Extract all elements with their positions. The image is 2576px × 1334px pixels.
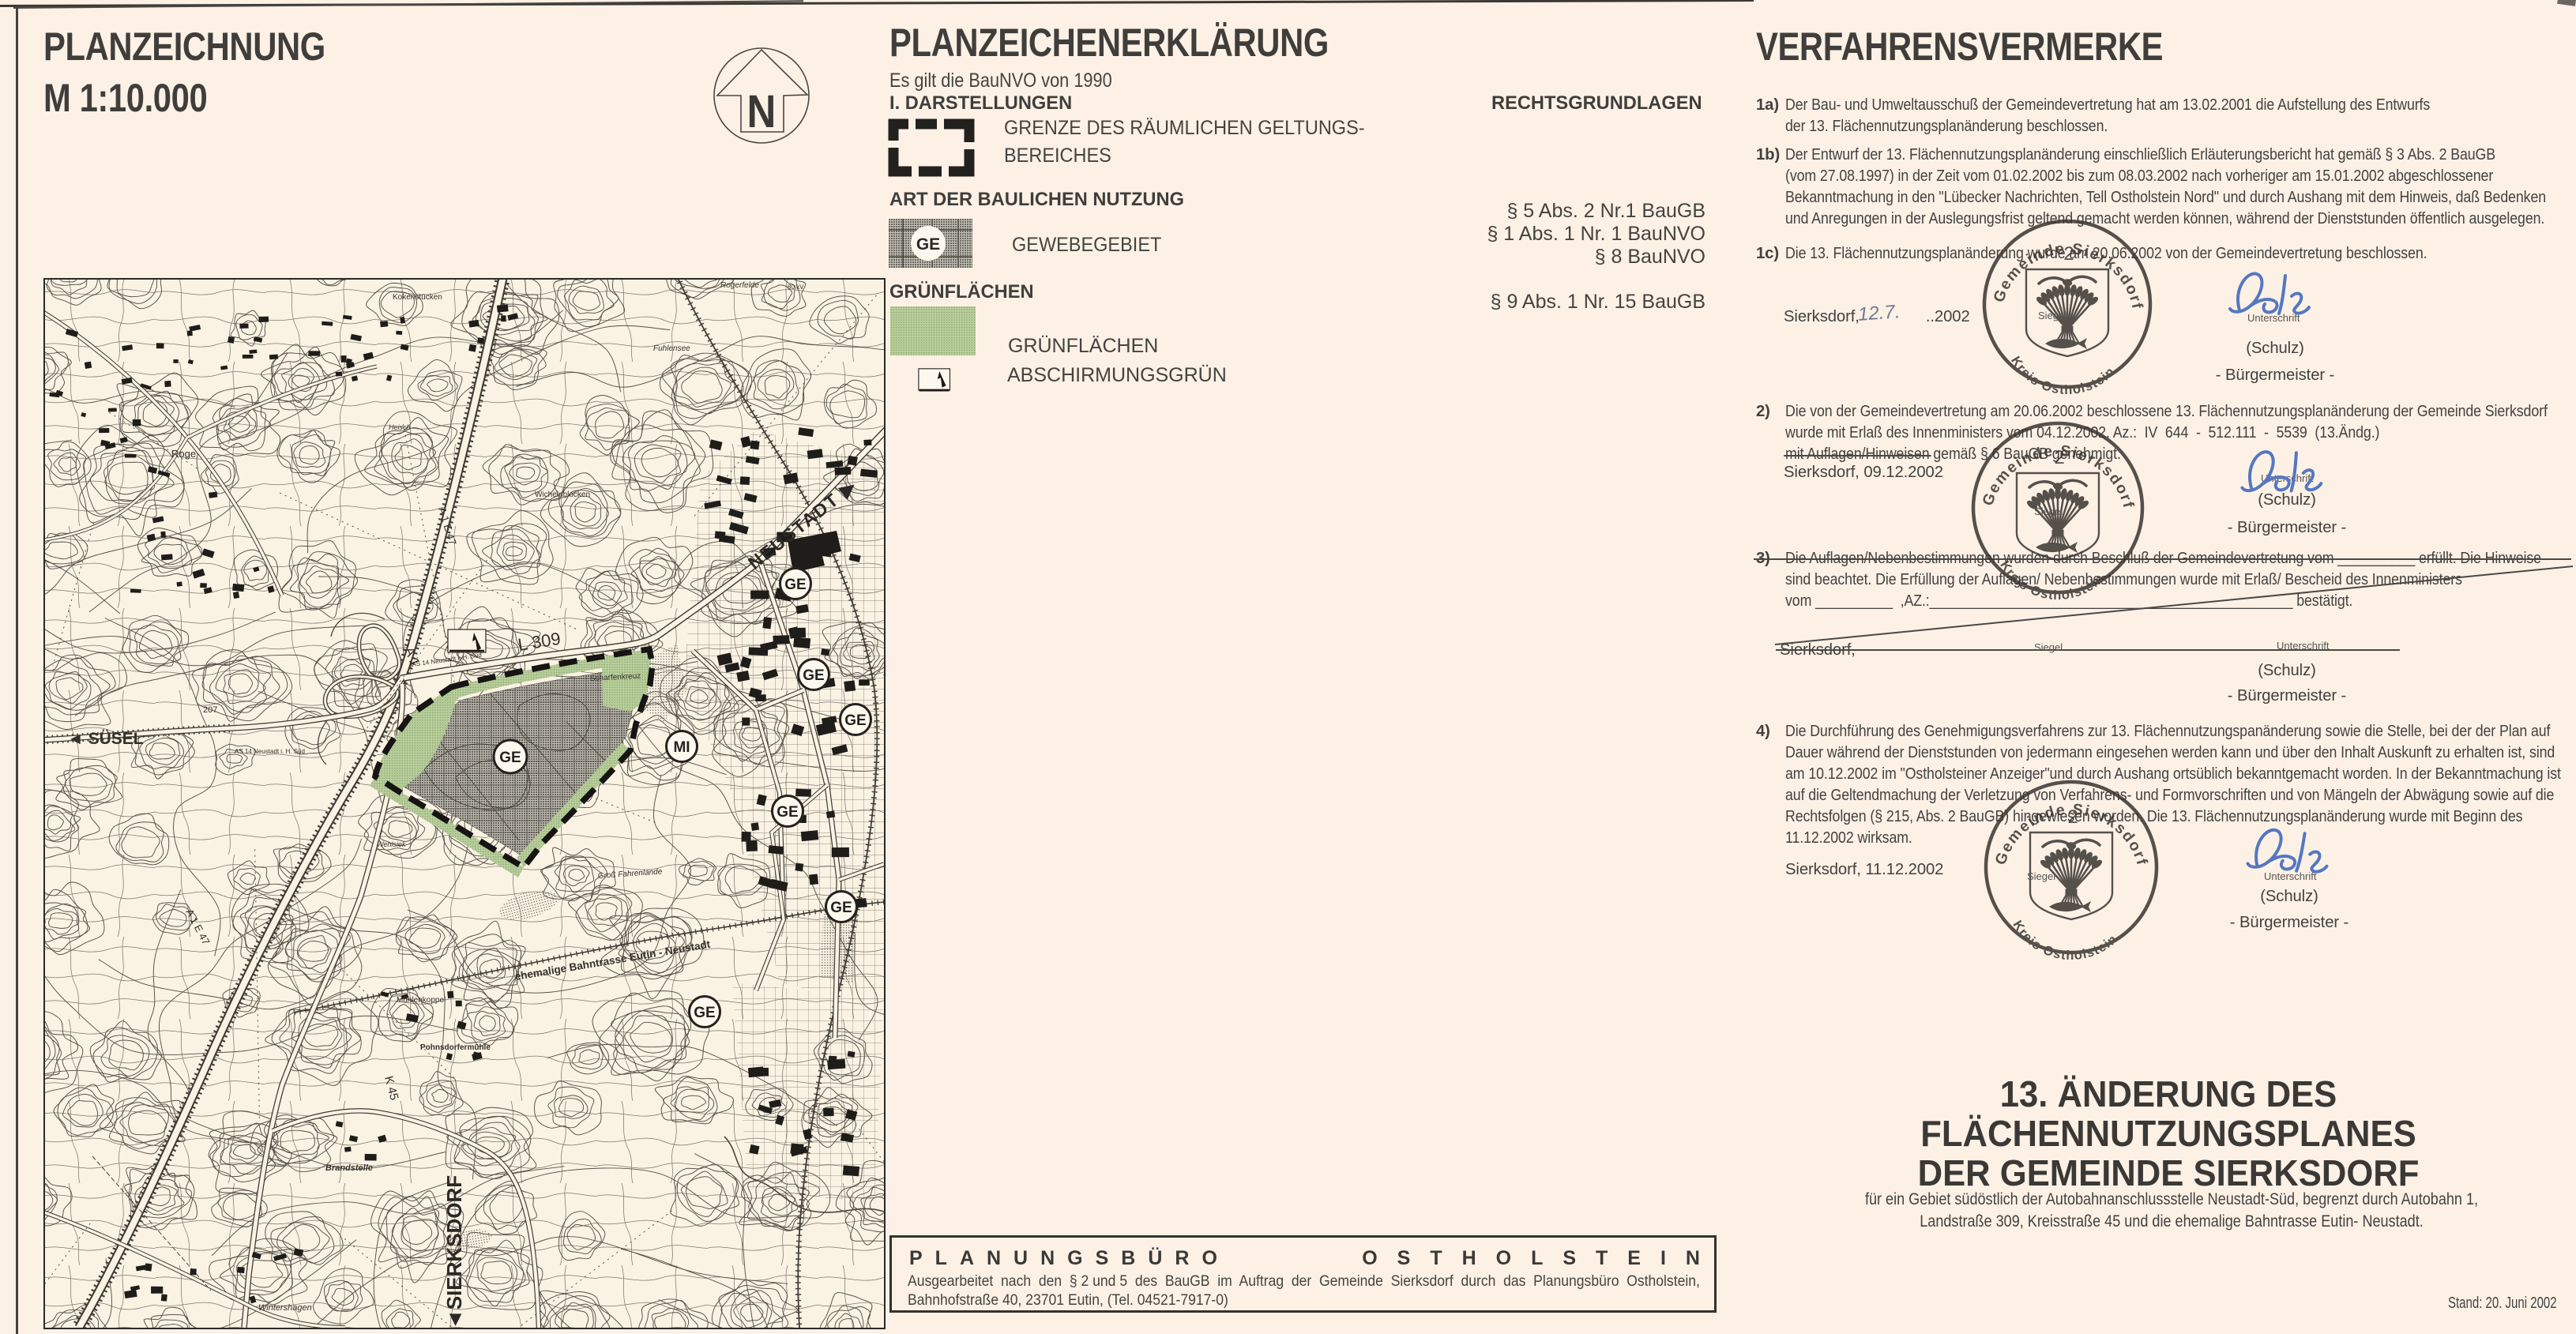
svg-text:GE: GE [844, 712, 866, 729]
svg-text:2: 2 [2063, 243, 2074, 265]
svg-text:GE: GE [803, 667, 824, 684]
svg-text:Heisch: Heisch [389, 423, 411, 431]
svg-text:80 kV: 80 kV [788, 284, 804, 291]
svg-text:Wintershagen: Wintershagen [258, 1303, 312, 1313]
svg-text:2: 2 [2054, 447, 2064, 468]
svg-text:Pohnsdorfermühle: Pohnsdorfermühle [420, 1043, 491, 1052]
svg-text:2: 2 [2067, 806, 2078, 828]
svg-text:Kokenstücken: Kokenstücken [393, 293, 442, 302]
svg-text:GE: GE [499, 750, 521, 766]
svg-text:207: 207 [203, 705, 217, 715]
svg-text:MI: MI [673, 739, 690, 756]
svg-text:GE: GE [916, 235, 940, 254]
svg-text:Mühlenkoppel: Mühlenkoppel [397, 996, 446, 1005]
svg-text:◄SIERKSDORF: ◄SIERKSDORF [442, 1175, 466, 1329]
svg-text:◄ SÜSEL: ◄ SÜSEL [67, 730, 144, 748]
svg-text:Roge: Roge [171, 448, 196, 460]
svg-text:Fuhlensee: Fuhlensee [653, 344, 690, 353]
svg-text:GE: GE [830, 900, 852, 916]
svg-text:Kreis Ostholstein: Kreis Ostholstein [2010, 918, 2120, 963]
svg-text:GE: GE [694, 1005, 715, 1021]
svg-text:AS 14 Neustadt i. H. Süd: AS 14 Neustadt i. H. Süd [235, 748, 305, 755]
svg-text:Kreis Ostholstein: Kreis Ostholstein [2008, 354, 2118, 397]
svg-text:N: N [747, 86, 777, 137]
svg-text:Wichelnblocken: Wichelnblocken [535, 490, 590, 499]
svg-text:Wehlsiek: Wehlsiek [377, 840, 406, 848]
svg-text:Kreis Ostholstein: Kreis Ostholstein [1997, 558, 2108, 603]
svg-text:Rogerfelde: Rogerfelde [720, 281, 759, 290]
svg-text:GE: GE [784, 577, 806, 593]
svg-text:Brandstelle: Brandstelle [325, 1163, 373, 1173]
svg-text:GE: GE [777, 804, 798, 821]
